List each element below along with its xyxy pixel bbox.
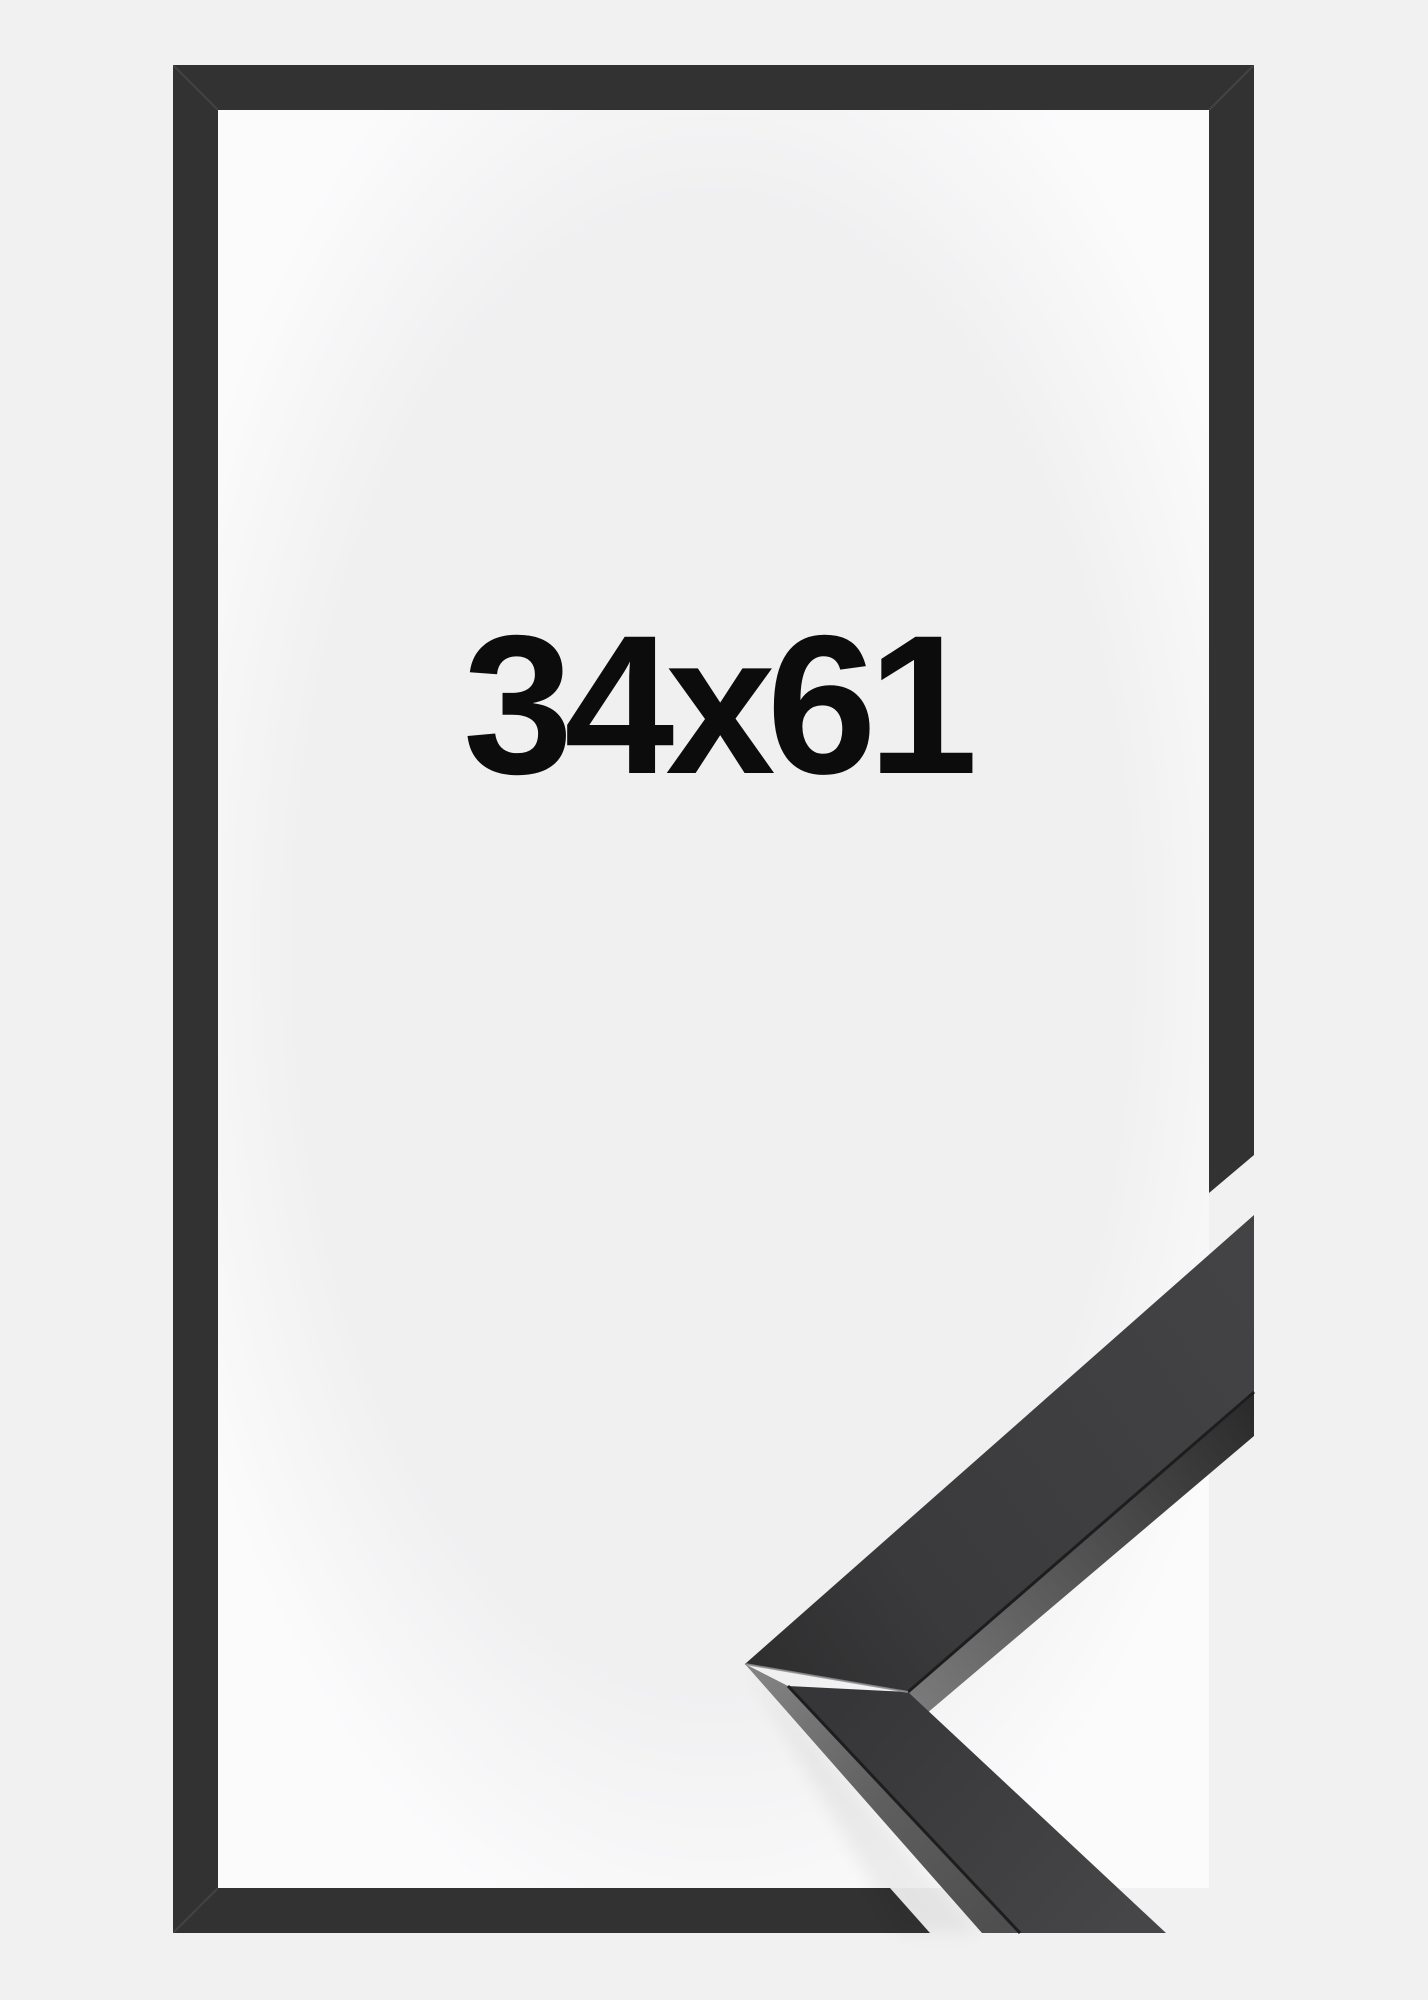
frame-product-image: 34x61 — [0, 0, 1428, 2000]
frame-interior — [218, 110, 1209, 1888]
frame-illustration — [0, 0, 1428, 2000]
frame-left-bar — [173, 65, 218, 1933]
frame-top-bar — [173, 65, 1254, 110]
frame-bottom-bar-cut — [173, 1888, 930, 1933]
frame-right-bar-cut — [1209, 110, 1254, 1193]
size-label: 34x61 — [463, 606, 969, 804]
